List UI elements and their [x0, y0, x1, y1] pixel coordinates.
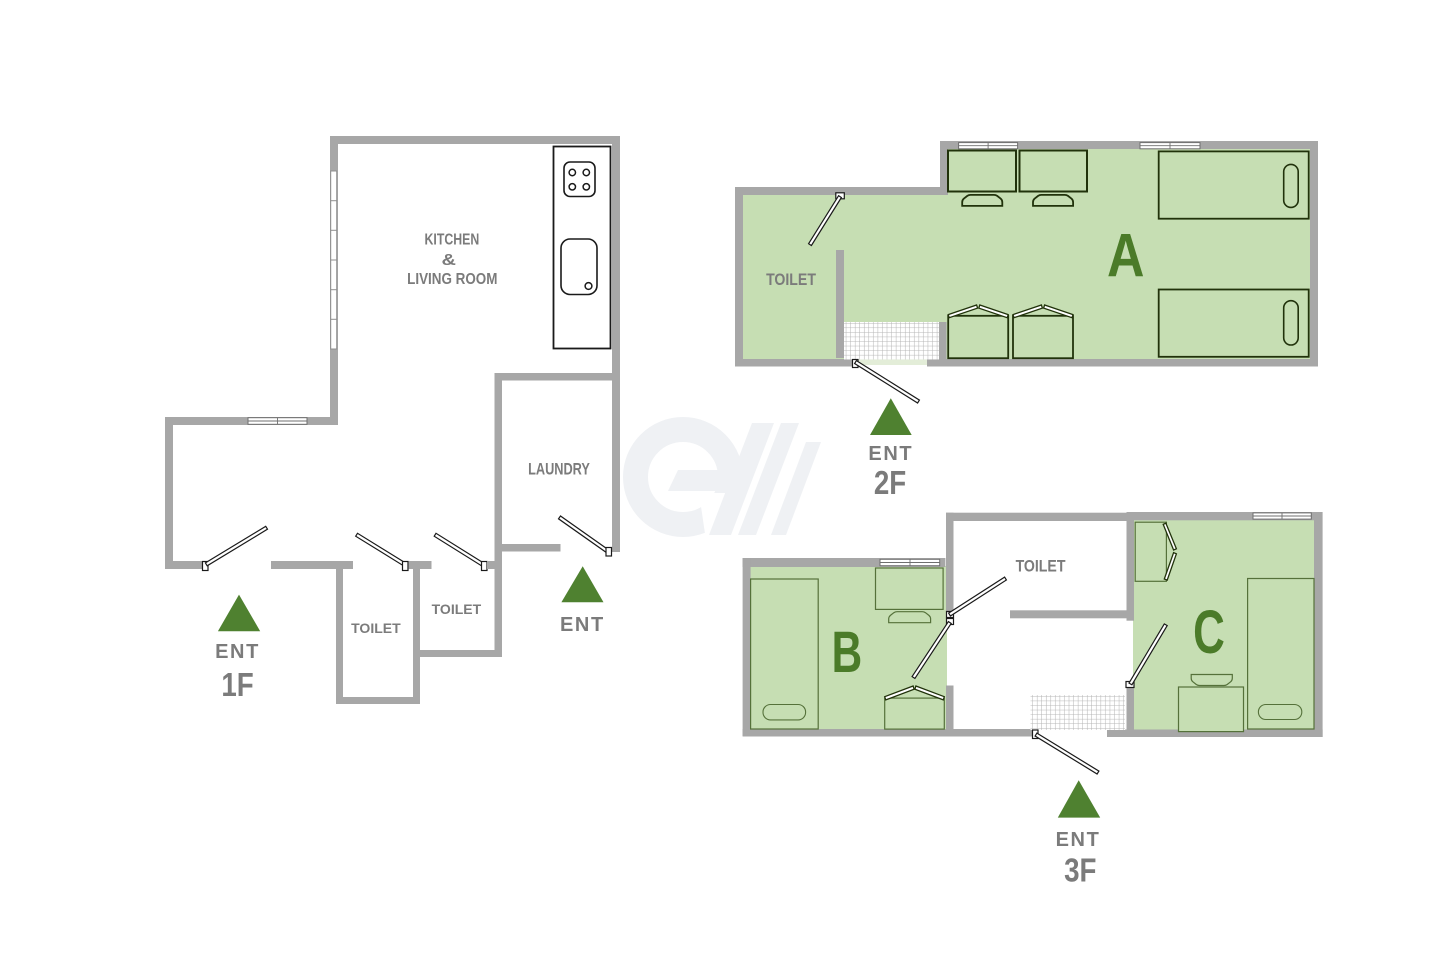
svg-text:A: A	[1107, 221, 1144, 289]
svg-text:ENT: ENT	[215, 641, 260, 663]
svg-text:LAUNDRY: LAUNDRY	[528, 460, 590, 479]
svg-text:2F: 2F	[874, 465, 906, 502]
svg-text:ENT: ENT	[560, 614, 605, 636]
svg-text:1F: 1F	[221, 667, 253, 704]
svg-text:&: &	[441, 251, 455, 269]
svg-text:ENT: ENT	[868, 443, 913, 465]
svg-text:TOILET: TOILET	[766, 271, 816, 289]
svg-text:TOILET: TOILET	[1016, 557, 1066, 575]
svg-text:LIVING ROOM: LIVING ROOM	[407, 271, 497, 288]
svg-text:KITCHEN: KITCHEN	[425, 231, 480, 249]
svg-text:3F: 3F	[1064, 852, 1096, 889]
svg-text:TOILET: TOILET	[351, 620, 401, 636]
svg-text:B: B	[832, 619, 863, 684]
svg-text:ENT: ENT	[1056, 829, 1101, 851]
svg-text:TOILET: TOILET	[432, 601, 482, 617]
svg-text:C: C	[1193, 599, 1225, 667]
